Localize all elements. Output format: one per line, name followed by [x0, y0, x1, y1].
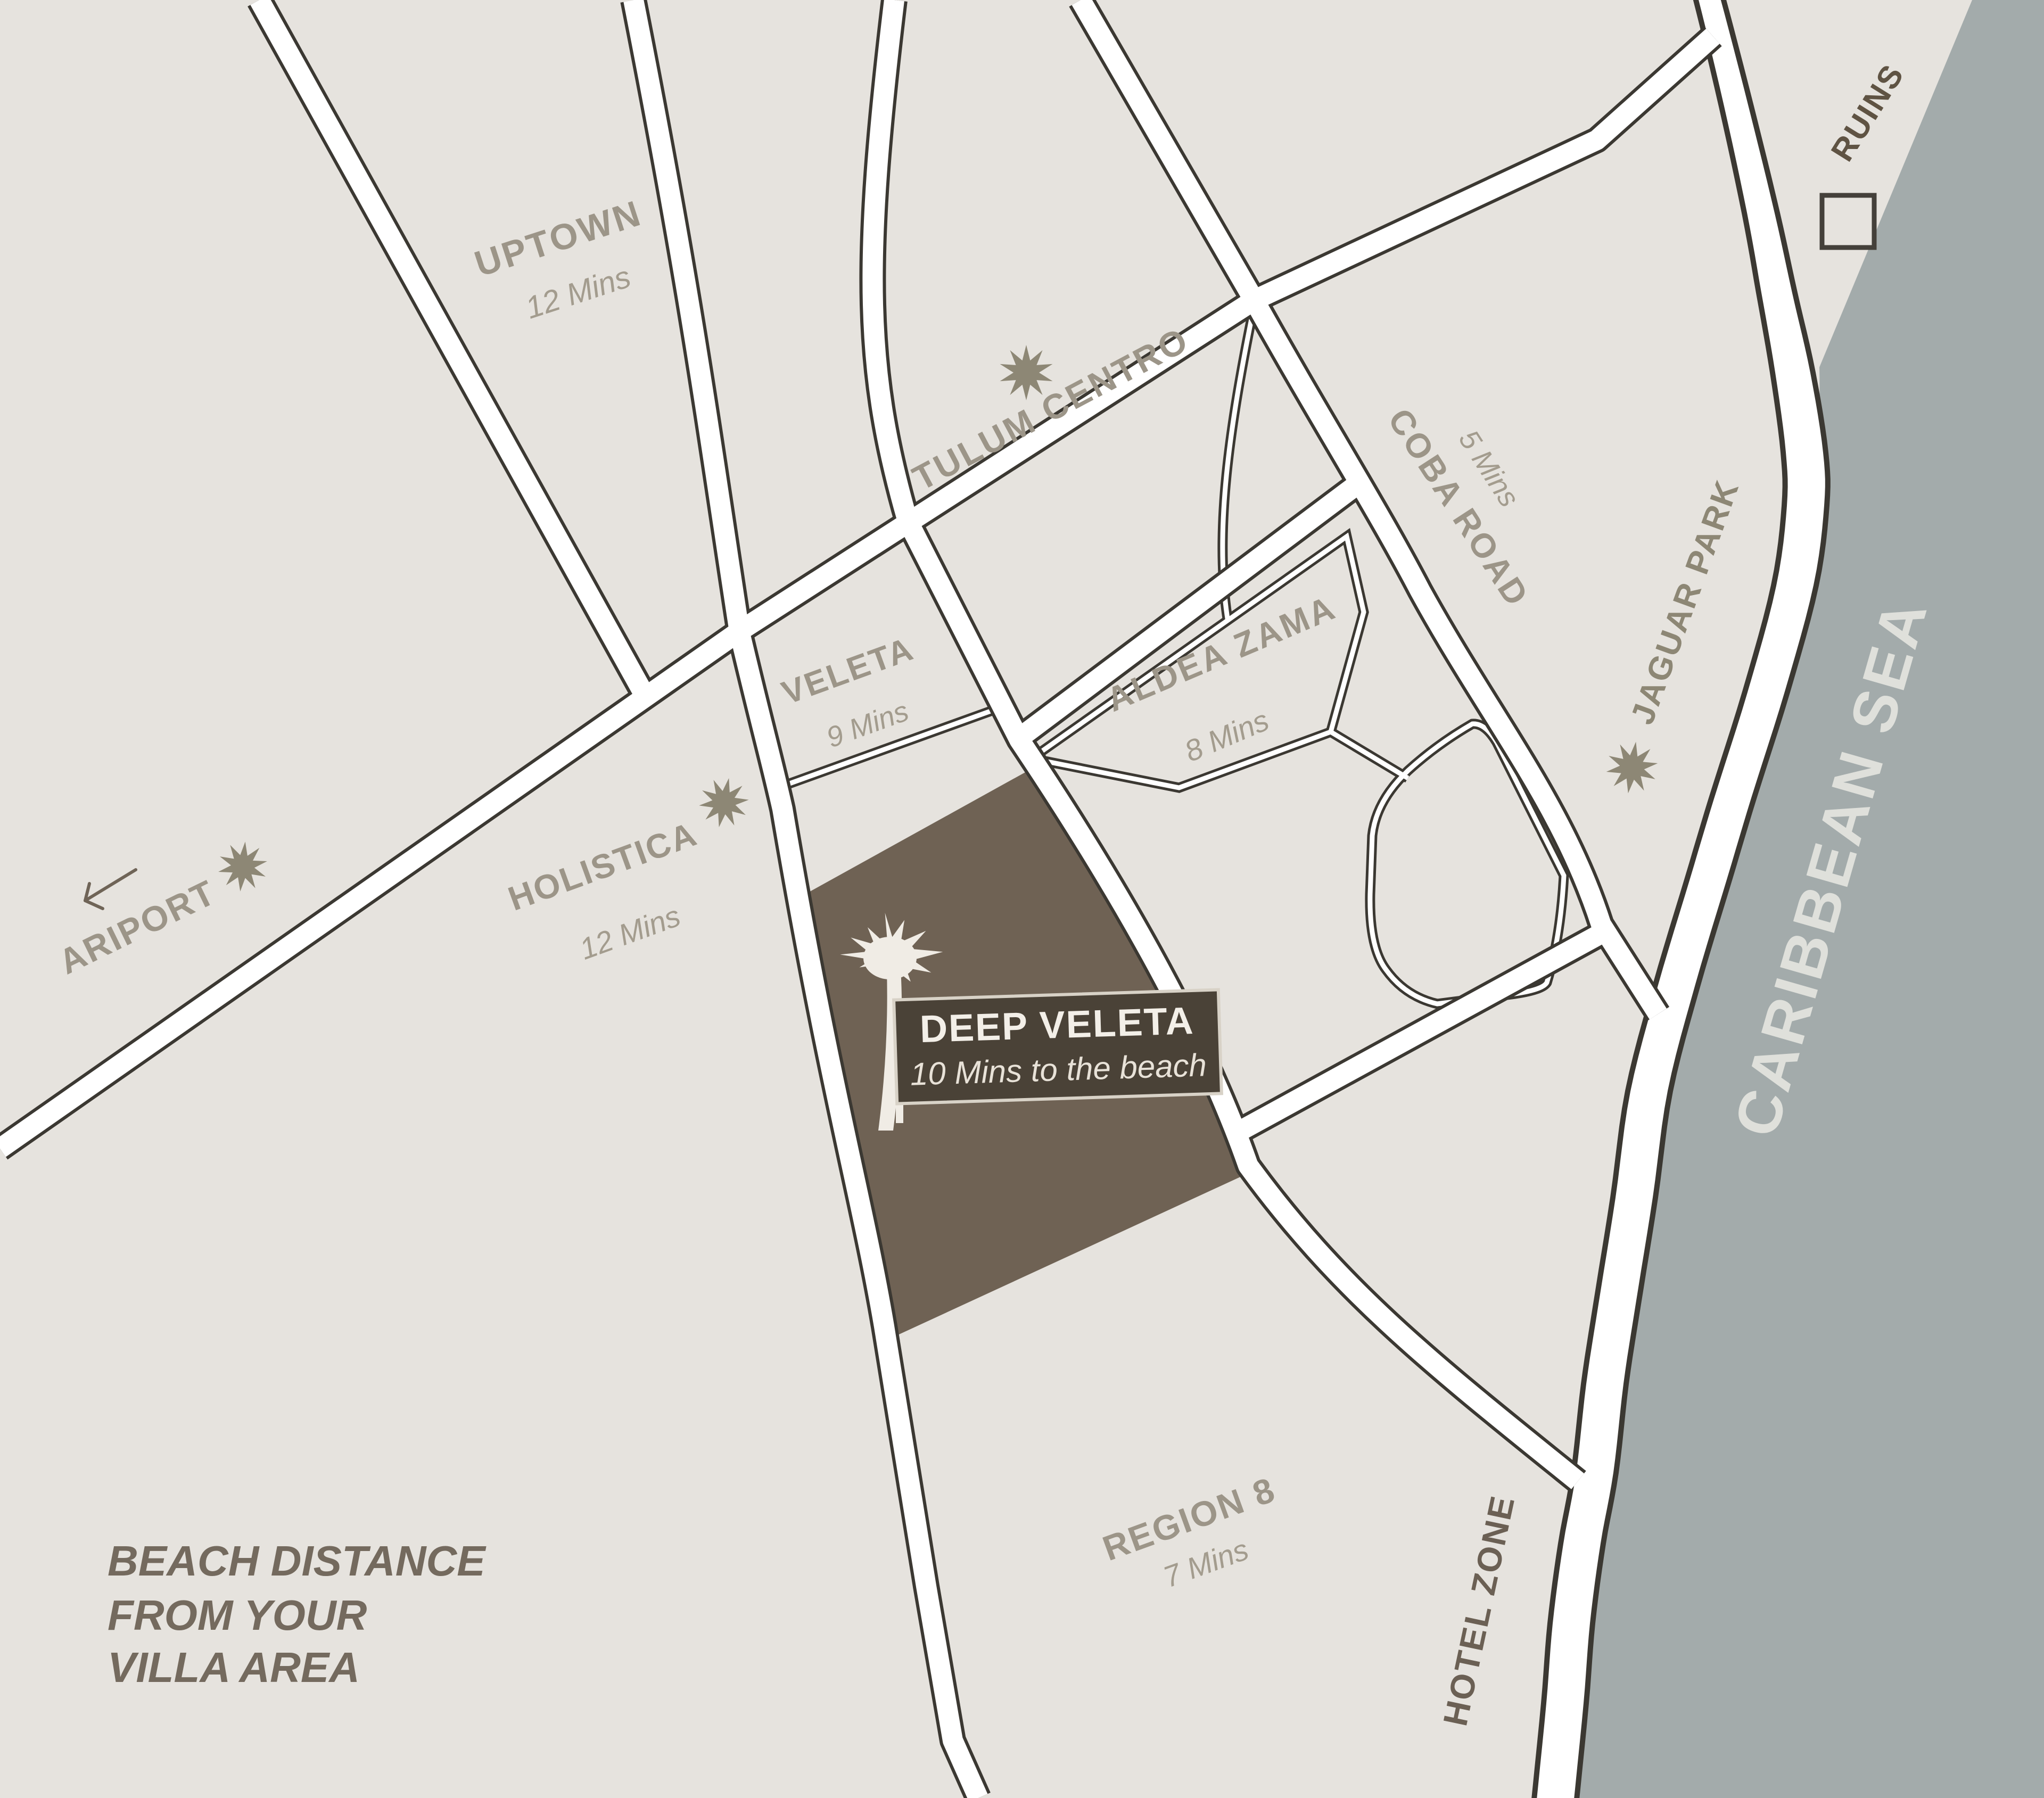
svg-text:FROM YOUR: FROM YOUR: [108, 1591, 367, 1639]
svg-text:VILLA AREA: VILLA AREA: [108, 1644, 360, 1691]
svg-text:BEACH DISTANCE: BEACH DISTANCE: [108, 1537, 487, 1585]
svg-text:DEEP VELETA: DEEP VELETA: [919, 1000, 1195, 1051]
